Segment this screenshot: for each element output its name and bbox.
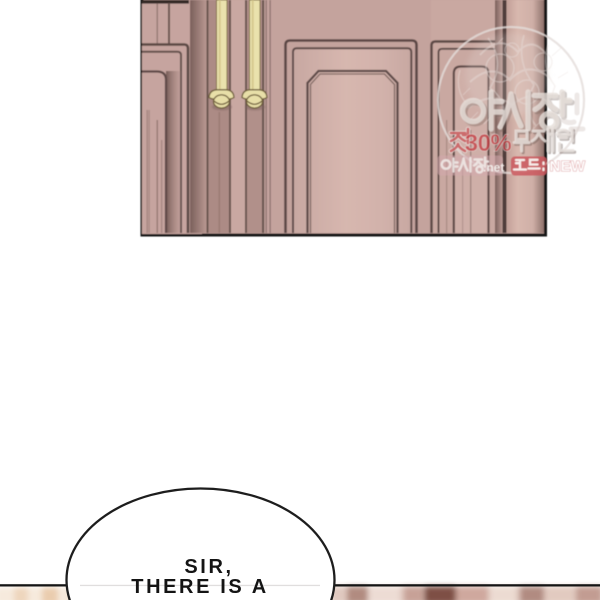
svg-text:30%: 30%: [465, 130, 512, 157]
svg-text:.net: .net: [483, 161, 504, 175]
svg-text:NEW: NEW: [550, 158, 586, 175]
